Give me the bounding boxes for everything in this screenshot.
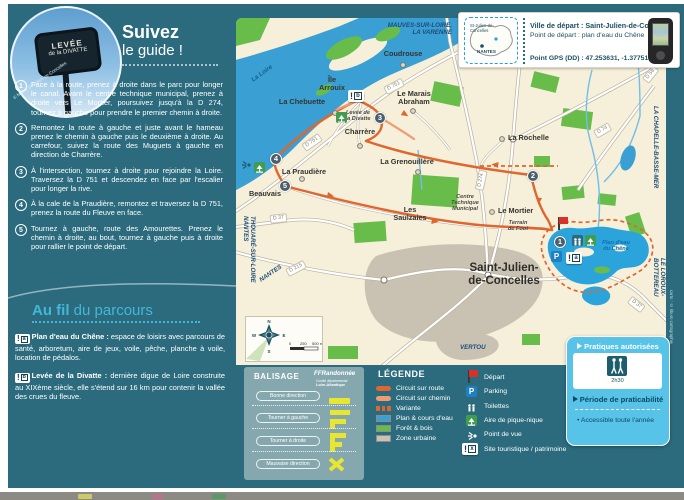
map-site-marker-a: ! a: [566, 252, 582, 264]
legend-viewpoint-label: Point de vue: [484, 431, 522, 438]
legend-viewpoint-icon: [466, 429, 478, 441]
practices-panel: Pratiques autorisées 2h30 Période de pra…: [566, 336, 670, 446]
map-label-praudiere: La Praudière: [276, 168, 332, 176]
map-direction-chapelle: LA CHAPELLE-BASSE-MER: [652, 106, 659, 236]
parking-icon: P: [551, 251, 562, 262]
map-label-ile-arrouix: Île Arrouix: [314, 76, 350, 91]
legend-site-icon: !x: [462, 443, 478, 455]
legend-depart-label: Départ: [484, 374, 504, 381]
legend-site-label: Site touristique / patrimoine: [484, 446, 566, 453]
turn-right-mark-icon: [328, 433, 350, 457]
aufil-heading-rest: du parcours: [70, 302, 153, 319]
aufil-item-name: Levée de la Divatte :: [32, 371, 108, 380]
legend-route-label: Circuit sur route: [396, 385, 444, 392]
scale-bar: [290, 347, 318, 350]
step-text: Tournez à gauche, route des Amourettes. …: [31, 224, 223, 252]
balisage-separator: [252, 405, 356, 406]
ffrandonnee-sub2: Loire-Atlantique: [316, 383, 345, 387]
compass-scale-inset: N S E W 0 250 500 m: [245, 316, 323, 362]
map-label-saint-julien: Saint-Julien- de-Concelles: [454, 262, 554, 287]
legend-site-letter: x: [468, 445, 476, 453]
compass-n: N: [267, 319, 270, 324]
lake-south-pond: [582, 287, 610, 306]
legend-forest-swatch: [376, 425, 391, 432]
map-direction-mauves: MAUVES-SUR-LOIRE, LA VARENNE: [356, 22, 452, 36]
region-minimap: St-Julien-de- Concelles NANTES: [464, 17, 518, 64]
wrong-direction-mark-icon: [328, 457, 346, 477]
picnic-icon: [254, 162, 265, 173]
site-marker-b: !b: [15, 373, 30, 383]
scan-bottom-strip: [0, 492, 684, 500]
gps-line: Point GPS (DD) : 47.253631, -1.377518: [530, 55, 652, 62]
trail-map: MAUVES-SUR-LOIRE, LA VARENNE Coudrouse Î…: [236, 18, 666, 365]
practices-title: Pratiques autorisées: [567, 342, 669, 351]
infobox-dotted-separator: [523, 18, 525, 64]
scale-end: 500 m: [312, 341, 322, 346]
turn-left-mark-icon: [328, 410, 352, 434]
compass-rose: [258, 324, 280, 346]
map-direction-vertou: VERTOU: [460, 344, 486, 351]
scale-zero: 0: [289, 341, 292, 346]
map-label-la-chebuette: La Chebuette: [274, 98, 330, 106]
legend-urban-label: Zone urbaine: [396, 435, 436, 442]
ffrandonnee-logo: FFRandonnée: [314, 370, 355, 377]
practices-title-text: Pratiques autorisées: [584, 342, 659, 351]
step-text: À l'intersection, tournez à droite pour …: [31, 166, 223, 194]
period-item-text: Accessible toute l'année: [581, 417, 654, 424]
step-item: 5 Tournez à gauche, route des Amourettes…: [15, 224, 223, 252]
lake-island-green: [594, 267, 610, 274]
step-text: Face à la route, prenez à droite dans le…: [31, 80, 223, 117]
guide-title-bold: Suivez: [122, 22, 179, 43]
duration-value: 2h30: [573, 378, 662, 384]
map-label-plan-deau: Plan d'eau du Chêne: [588, 240, 644, 252]
legend-title: LÉGENDE: [378, 369, 425, 379]
scan-artifact: [78, 494, 92, 499]
compass-e: E: [282, 333, 285, 338]
site-letter-a: a: [572, 254, 580, 262]
step-number: 1: [15, 80, 27, 92]
step-number: 2: [15, 123, 27, 135]
minimap-nantes-label: NANTES: [477, 49, 496, 54]
aufil-dotted-rule: [32, 321, 200, 323]
map-basemap: [236, 18, 666, 365]
cartography-credit: carto : © tiburo cartographie: [669, 290, 674, 344]
legend-route-swatch: [376, 386, 391, 391]
aufil-item-name: Plan d'eau du Chêne :: [32, 332, 109, 341]
map-site-marker-b: ! b: [348, 90, 364, 102]
aufil-items: !aPlan d'eau du Chêne : espace de loisir…: [15, 332, 225, 410]
levee-sign: LEVÉE de la DIVATTE: [34, 26, 103, 77]
site-letter: a: [21, 336, 28, 343]
balisage-panel: BALISAGE FFRandonnée Comité départementa…: [244, 367, 364, 480]
arrow-icon: [577, 343, 582, 349]
gps-screen: [652, 23, 669, 46]
step-item: 4 À la cale de la Praudière, remontez et…: [15, 199, 223, 217]
step-text: À la cale de la Praudière, remontez et t…: [31, 199, 223, 217]
legend-variante-label: Variante: [396, 405, 421, 412]
period-item: • Accessible toute l'année: [577, 417, 654, 424]
period-title-text: Période de praticabilité: [580, 395, 664, 404]
pond-small: [617, 143, 638, 172]
map-marker-1: 1: [554, 236, 566, 248]
step-list: 1 Face à la route, prenez à droite dans …: [15, 80, 223, 257]
gps-device-photo: [648, 18, 673, 64]
balisage-turn-left: Tourner à gauche: [256, 413, 320, 423]
legend-water-label: Plan & cours d'eau: [396, 415, 453, 422]
balisage-turn-right: Tourner à droite: [256, 436, 320, 446]
balisage-wrong-direction: Mauvaise direction: [256, 459, 320, 469]
exclamation-icon: !: [17, 373, 20, 383]
duration-box: 2h30: [573, 353, 662, 389]
arrow-icon: [573, 396, 578, 402]
step-item: 1 Face à la route, prenez à droite dans …: [15, 80, 223, 117]
scale-mid: 250: [300, 341, 307, 346]
balisage-good-direction: Bonne direction: [256, 391, 320, 401]
map-direction-loroux: LE LOROUX-BOTTEREAU: [652, 258, 666, 330]
title-dotted-rule: [122, 64, 218, 66]
guide-title-rest: le guide !: [122, 42, 183, 59]
legend-water-swatch: [376, 415, 391, 422]
depart-point-line: Point de départ : plan d'eau du Chêne: [530, 32, 644, 39]
map-marker-2: 2: [527, 170, 539, 182]
map-marker-5: 5: [279, 180, 291, 192]
legend-parking-icon: P: [466, 386, 477, 397]
step-number: 5: [15, 224, 27, 236]
depart-flag-icon: [557, 217, 569, 230]
map-label-la-rochelle: La Rochelle: [508, 134, 558, 142]
panel-dashed-rule: [575, 409, 660, 410]
minimap-city-label: St-Julien-de- Concelles: [470, 24, 494, 33]
exclamation-icon: !: [568, 253, 571, 263]
exclamation-icon: !: [17, 334, 20, 344]
scan-artifact: [212, 494, 226, 499]
site-letter: b: [21, 374, 28, 381]
legend-forest-label: Forêt & bois: [396, 425, 433, 432]
site-marker-a: !a: [15, 334, 30, 344]
gps-button: [656, 51, 665, 60]
legend-variante-swatch: [376, 406, 391, 411]
map-label-beauvais: Beauvais: [244, 190, 286, 198]
map-label-le-mortier: Le Mortier: [498, 207, 542, 215]
map-label-grenouillere: La Grenouillère: [374, 158, 440, 166]
city-dot: [494, 37, 497, 40]
compass-s: S: [267, 349, 270, 354]
brochure-page: MAUVES-SUR-LOIRE, LA VARENNE Coudrouse Î…: [0, 0, 684, 500]
good-direction-mark-icon: [328, 392, 352, 410]
picnic-icon: [336, 112, 347, 123]
step-item: 3 À l'intersection, tournez à droite pou…: [15, 166, 223, 194]
compass-wedge: [246, 337, 269, 361]
exclamation-icon: !: [464, 444, 467, 454]
map-direction-thouare: THOUARÉ-SUR-LOIRE NANTES: [242, 216, 256, 306]
step-number: 4: [15, 199, 27, 211]
compass-w: W: [252, 333, 257, 338]
site-letter-b: b: [354, 92, 362, 100]
legend-chemin-label: Circuit sur chemin: [396, 395, 450, 402]
legend-toilets-icon: [466, 401, 477, 412]
map-label-terrain-foot: Terrain de Foot: [498, 220, 538, 232]
legend-picnic-icon: [466, 415, 477, 426]
aufil-heading: Au fil du parcours: [32, 302, 153, 319]
aufil-item-b: !bLevée de la Divatte : dernière digue d…: [15, 371, 225, 402]
step-number: 3: [15, 166, 27, 178]
hikers-icon: [607, 356, 627, 376]
balisage-separator: [252, 451, 356, 452]
scan-artifact: [152, 494, 164, 499]
legend-urban-swatch: [376, 435, 391, 442]
legend-picnic-label: Aire de pique-nique: [484, 417, 543, 424]
road-badge-d37-west: D 37: [270, 213, 288, 223]
map-label-coudrouse: Coudrouse: [380, 50, 426, 58]
legend-toilets-label: Toilettes: [484, 403, 509, 410]
balisage-title: BALISAGE: [254, 372, 299, 381]
sidebar-divider-swoosh: [8, 276, 236, 302]
viewpoint-icon: [240, 158, 252, 170]
picnic-icon: [585, 235, 596, 246]
exclamation-icon: !: [350, 91, 353, 101]
legend-parking-label: Parking: [484, 388, 507, 395]
map-marker-3: 3: [374, 112, 386, 124]
map-label-centre-technique: Centre Technique Municipal: [440, 194, 490, 212]
period-title: Période de praticabilité: [567, 395, 669, 404]
map-label-marais-abraham: Le Marais Abraham: [388, 90, 440, 105]
toilets-icon: [572, 235, 583, 246]
aufil-item-a: !aPlan d'eau du Chêne : espace de loisir…: [15, 332, 225, 363]
aufil-heading-bold: Au fil: [32, 302, 70, 319]
balisage-separator: [252, 428, 356, 429]
map-label-charrere: Charrère: [336, 128, 384, 136]
bullet: •: [577, 417, 579, 424]
legend-depart-flag-icon: [467, 370, 479, 383]
departure-infobox: St-Julien-de- Concelles NANTES Ville de …: [458, 12, 680, 68]
map-label-saulzaies: Les Saulzaies: [388, 206, 432, 221]
map-marker-4: 4: [270, 153, 282, 165]
step-text: Remontez la route à gauche et juste avan…: [31, 123, 223, 160]
nantes-dot: [480, 44, 484, 48]
legend-chemin-swatch: [376, 396, 391, 401]
step-item: 2 Remontez la route à gauche et juste av…: [15, 123, 223, 160]
